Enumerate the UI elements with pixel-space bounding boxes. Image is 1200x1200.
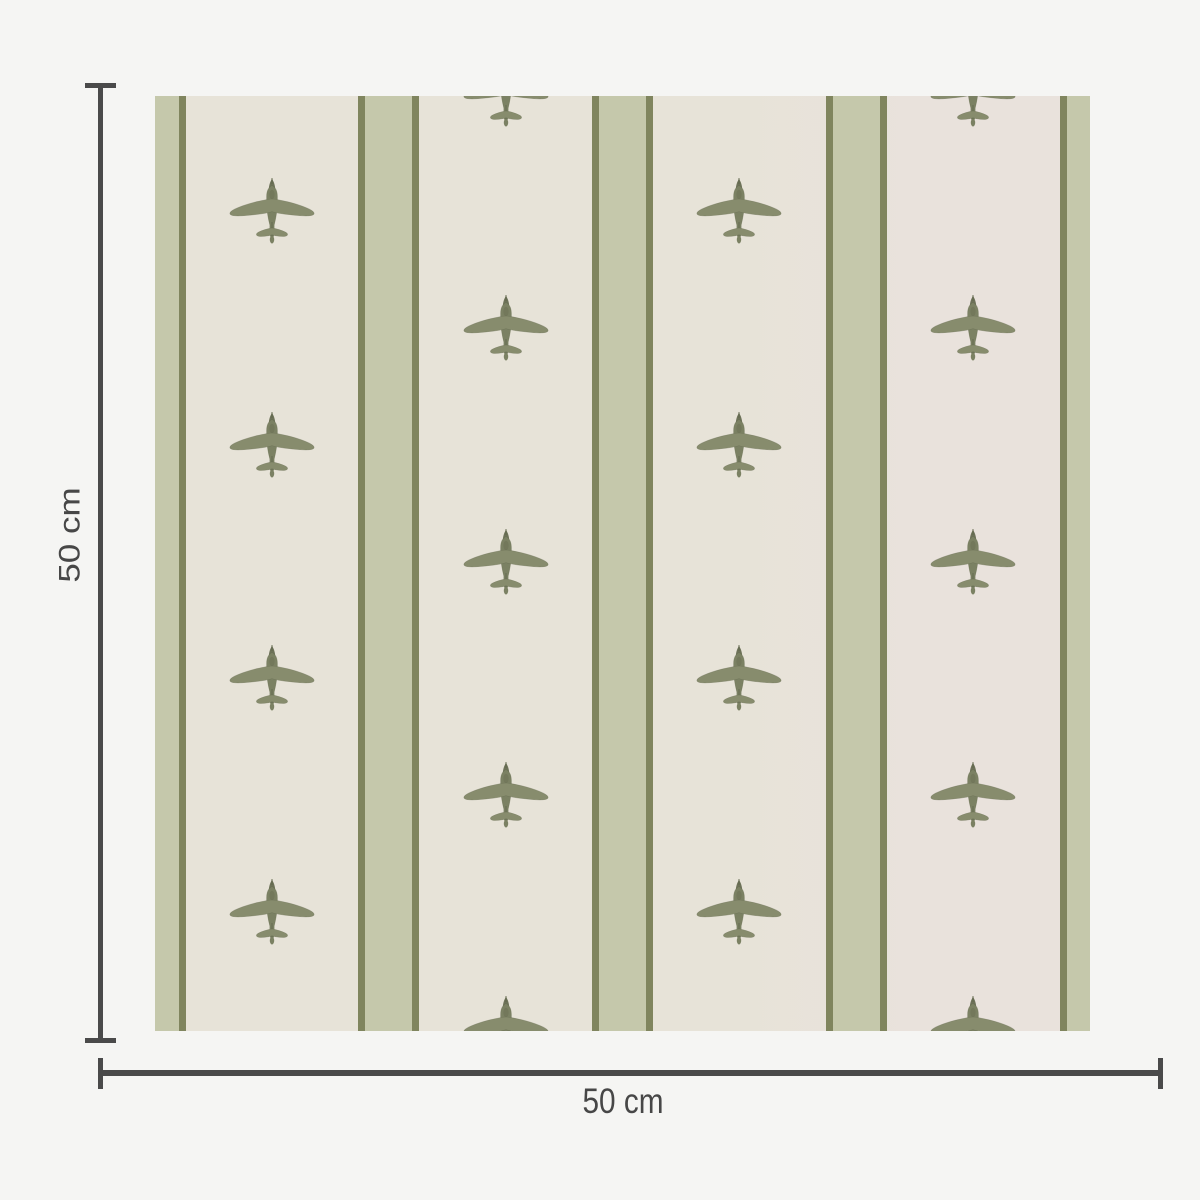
width-dimension-line: [100, 1070, 1161, 1076]
airplane-icon: [228, 178, 316, 248]
wallpaper-swatch: [155, 96, 1090, 1031]
wallpaper-stripe: [826, 96, 887, 1031]
wallpaper-stripe: [592, 96, 653, 1031]
airplane-icon: [462, 96, 550, 131]
airplane-icon: [695, 412, 783, 482]
product-image: 50 cm 50 cm: [0, 0, 1200, 1200]
height-dimension-cap-bottom: [85, 1038, 116, 1043]
airplane-icon: [929, 529, 1017, 599]
airplane-icon: [228, 645, 316, 715]
wallpaper-stripe: [358, 96, 419, 1031]
airplane-icon: [462, 529, 550, 599]
airplane-icon: [929, 996, 1017, 1031]
height-dimension-line: [98, 85, 103, 1041]
airplane-icon: [228, 879, 316, 949]
wallpaper-stripe: [1060, 96, 1091, 1031]
airplane-icon: [695, 879, 783, 949]
airplane-icon: [462, 762, 550, 832]
airplane-icon: [929, 295, 1017, 365]
wallpaper-stripe: [155, 96, 186, 1031]
width-dimension-cap-right: [1158, 1058, 1163, 1089]
airplane-icon: [695, 645, 783, 715]
airplane-icon: [462, 996, 550, 1031]
airplane-icon: [929, 762, 1017, 832]
height-dimension-label: 50 cm: [53, 487, 87, 582]
airplane-icon: [462, 295, 550, 365]
width-dimension-label: 50 cm: [582, 1082, 663, 1122]
airplane-icon: [695, 178, 783, 248]
airplane-icon: [929, 96, 1017, 131]
airplane-icon: [228, 412, 316, 482]
